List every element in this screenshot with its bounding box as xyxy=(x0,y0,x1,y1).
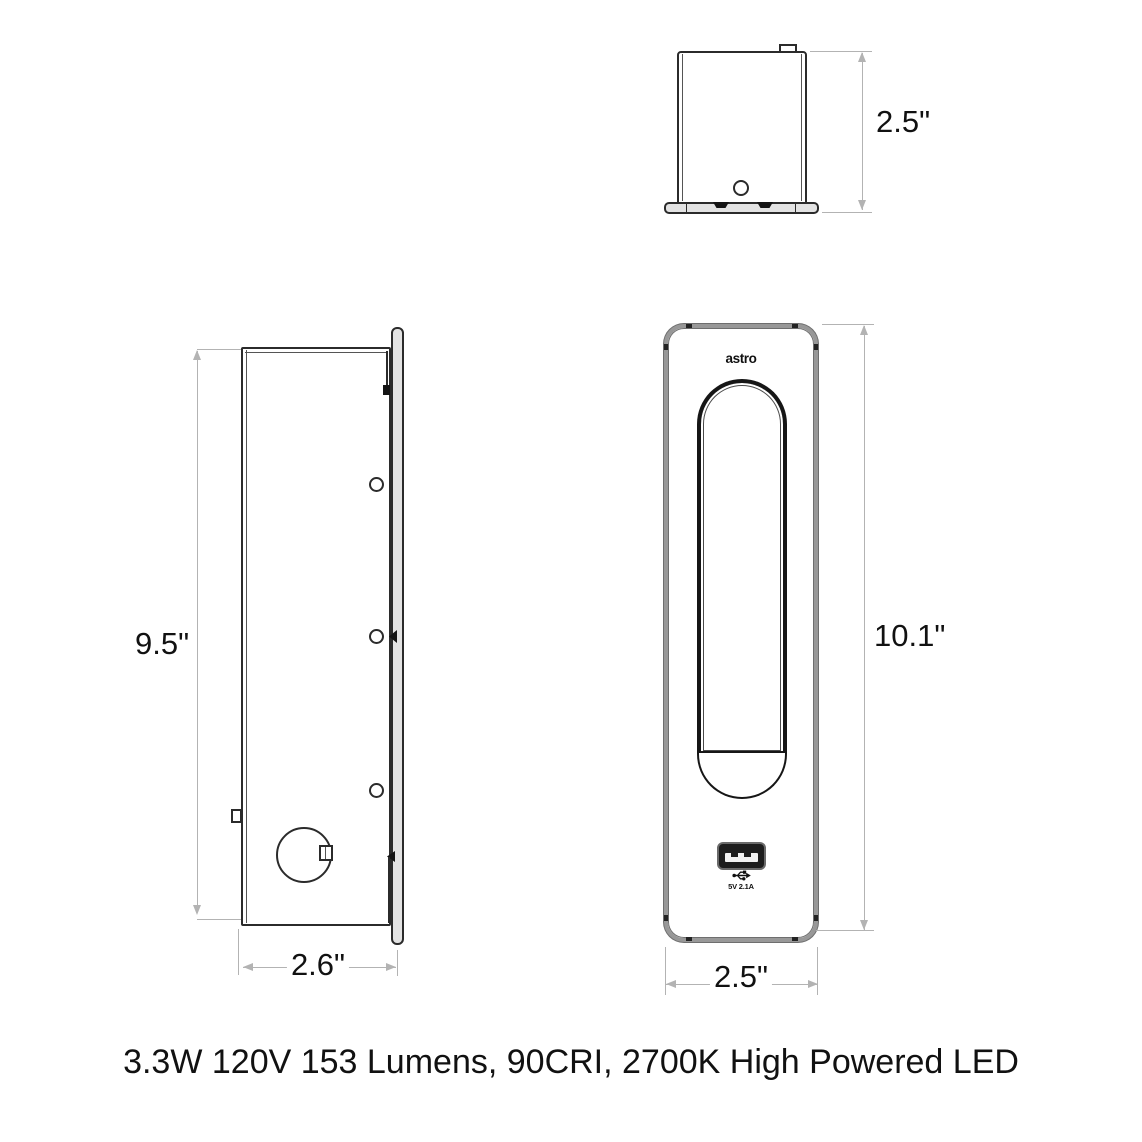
dim-arrow-left xyxy=(666,980,676,988)
dim-arrow-up xyxy=(860,325,868,335)
brand-logo: astro xyxy=(725,351,756,366)
side-view-left-tab xyxy=(231,809,242,823)
top-view-inner-wall-right xyxy=(801,54,802,201)
mounting-clip-top xyxy=(383,385,390,395)
dim-ext-line xyxy=(238,929,239,975)
dim-line xyxy=(864,326,865,930)
dim-line xyxy=(862,53,863,210)
dim-line xyxy=(197,351,198,911)
dim-arrow-right xyxy=(386,963,396,971)
dim-arrow-down xyxy=(193,905,201,915)
dim-arrow-left xyxy=(243,963,253,971)
dim-ext-line xyxy=(197,349,241,350)
top-view-screw-hole xyxy=(733,180,749,196)
frame-tick xyxy=(792,324,798,328)
side-depth-label: 2.6" xyxy=(287,949,349,982)
top-view-flange-seam-left xyxy=(686,203,687,213)
dim-arrow-down xyxy=(860,920,868,930)
dim-arrow-right xyxy=(808,980,818,988)
screw-hole-2 xyxy=(369,629,384,644)
frame-tick xyxy=(792,937,798,941)
front-width-label: 2.5" xyxy=(710,961,772,994)
frame-tick xyxy=(814,344,818,350)
frame-tick xyxy=(664,344,668,350)
frame-tick xyxy=(686,937,692,941)
dim-arrow-down xyxy=(858,200,866,210)
side-view-inner-top-line xyxy=(245,352,388,353)
usb-contact xyxy=(744,853,751,857)
dim-arrow-up xyxy=(858,52,866,62)
spec-caption: 3.3W 120V 153 Lumens, 90CRI, 2700K High … xyxy=(123,1043,1019,1082)
top-depth-label: 2.5" xyxy=(872,106,934,139)
frame-tick xyxy=(814,915,818,921)
knockout-tab-line xyxy=(325,847,326,859)
dim-ext-line xyxy=(822,212,872,213)
frame-tick xyxy=(686,324,692,328)
usb-port xyxy=(717,842,766,870)
dim-arrow-up xyxy=(193,350,201,360)
frame-tick xyxy=(664,915,668,921)
usb-slot xyxy=(725,853,758,862)
usb-rating-label: 5V 2.1A xyxy=(728,882,754,891)
dim-ext-line xyxy=(197,919,241,920)
light-lens-arch xyxy=(697,379,787,753)
technical-drawing-canvas: 2.5" 9.5" 2.6" astro xyxy=(0,0,1142,1142)
screw-hole-1 xyxy=(369,477,384,492)
top-view-inner-wall-left xyxy=(682,54,683,201)
dim-ext-line xyxy=(397,950,398,976)
mounting-bracket-line-bottom xyxy=(388,857,390,923)
side-height-label: 9.5" xyxy=(131,628,193,661)
top-view-flange-seam-right xyxy=(795,203,796,213)
usb-icon xyxy=(732,869,751,882)
knockout-tab xyxy=(319,845,333,861)
side-view-inner-left-line xyxy=(246,350,247,923)
usb-contact xyxy=(731,853,738,857)
screw-hole-3 xyxy=(369,783,384,798)
mounting-bracket-line-top xyxy=(386,351,388,387)
dim-ext-line xyxy=(816,930,874,931)
front-height-label: 10.1" xyxy=(870,620,949,653)
